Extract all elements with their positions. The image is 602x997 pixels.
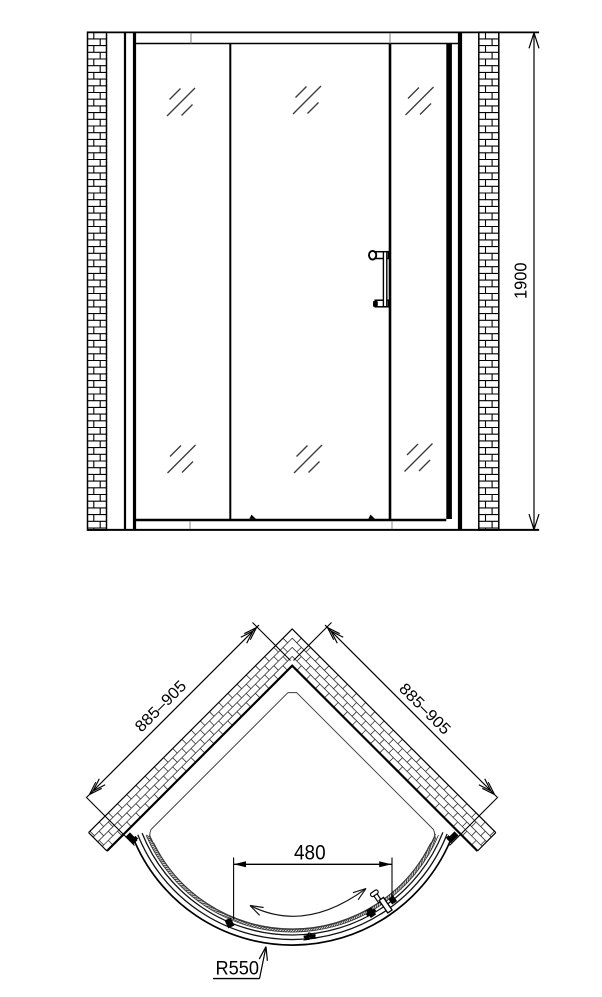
svg-text:480: 480 bbox=[294, 841, 326, 865]
svg-text:R550: R550 bbox=[216, 958, 260, 979]
svg-text:1900: 1900 bbox=[510, 262, 530, 299]
